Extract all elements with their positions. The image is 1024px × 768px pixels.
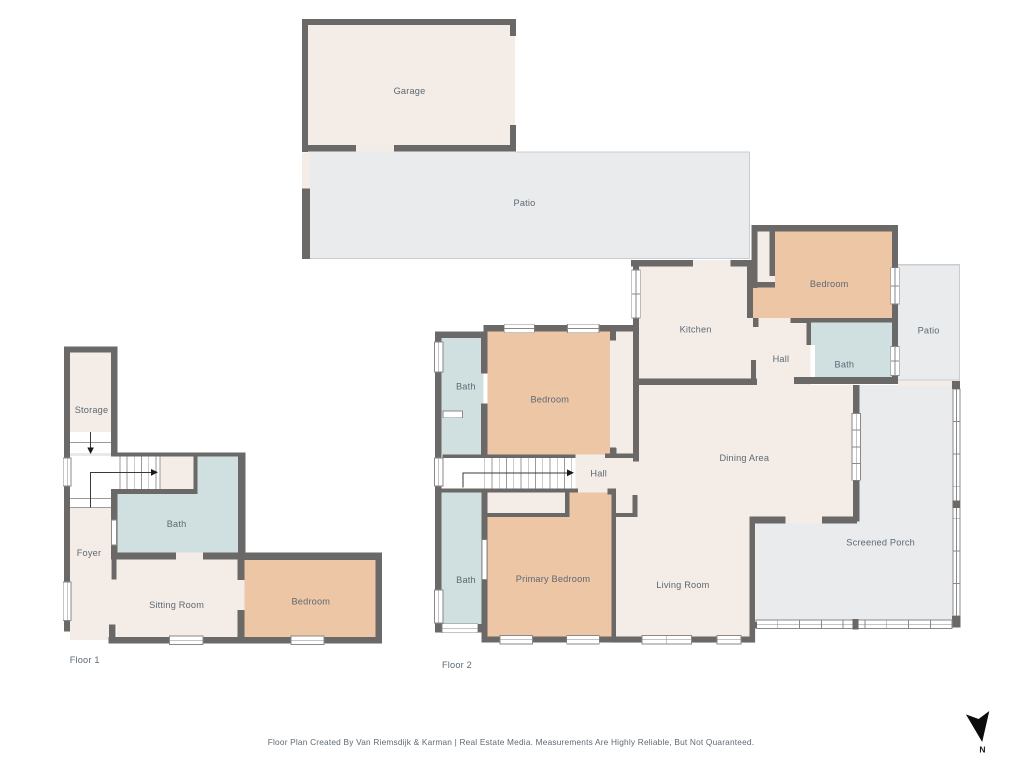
svg-text:Patio: Patio (918, 326, 940, 336)
svg-text:Kitchen: Kitchen (680, 325, 712, 335)
svg-text:Bedroom: Bedroom (291, 597, 330, 607)
svg-text:Dining Area: Dining Area (719, 453, 769, 463)
svg-text:Floor 2: Floor 2 (442, 660, 472, 670)
svg-text:Garage: Garage (394, 86, 426, 96)
svg-text:Primary Bedroom: Primary Bedroom (516, 574, 591, 584)
svg-text:Bath: Bath (456, 382, 476, 392)
svg-text:Bedroom: Bedroom (530, 395, 569, 405)
svg-text:Bath: Bath (835, 360, 855, 370)
svg-text:Floor 1: Floor 1 (70, 655, 100, 665)
svg-text:N: N (979, 745, 985, 755)
svg-text:Hall: Hall (590, 469, 607, 479)
svg-text:Sitting Room: Sitting Room (149, 600, 204, 610)
svg-text:Hall: Hall (773, 354, 790, 364)
svg-text:Bedroom: Bedroom (810, 279, 849, 289)
svg-text:Screened Porch: Screened Porch (846, 538, 915, 548)
svg-text:Patio: Patio (514, 198, 536, 208)
svg-text:Storage: Storage (75, 405, 109, 415)
svg-text:Floor Plan Created By Van Riem: Floor Plan Created By Van Riemsdijk & Ka… (268, 737, 755, 747)
svg-text:Bath: Bath (456, 575, 476, 585)
svg-text:Bath: Bath (167, 519, 187, 529)
svg-text:Living Room: Living Room (656, 580, 709, 590)
svg-text:Foyer: Foyer (77, 548, 102, 558)
